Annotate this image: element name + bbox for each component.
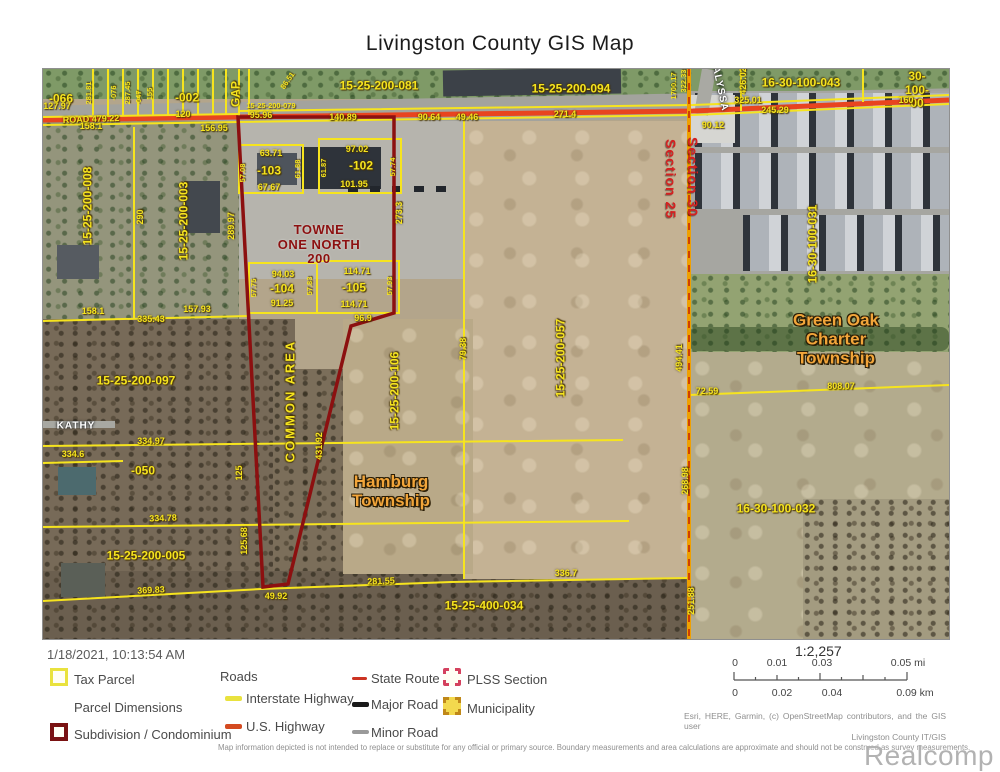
map-label: 15-25-200-094 xyxy=(532,82,611,95)
map-label: 156.95 xyxy=(200,123,228,133)
map-label: 57.93 xyxy=(386,277,394,296)
map-label: 322.33 xyxy=(680,70,688,93)
map-label: 268.98 xyxy=(680,467,690,495)
disclaimer: Map information depicted is not intended… xyxy=(218,743,970,752)
map-label: 90.64 xyxy=(418,112,441,122)
plss-section-icon xyxy=(443,668,461,686)
map-label: 49.46 xyxy=(456,112,479,122)
map-label: 57.08 xyxy=(239,164,247,183)
scale-km-3: 0.09 km xyxy=(896,687,933,699)
map-label: Section 25 xyxy=(662,139,678,219)
map-label: 16-30-100-031 xyxy=(806,205,819,284)
map-label: 114.71 xyxy=(340,299,367,309)
tax-parcel-icon xyxy=(50,668,68,686)
municipality-icon xyxy=(443,697,461,715)
legend-municipality: Municipality xyxy=(467,701,535,716)
map-label: 125 xyxy=(234,465,244,480)
map-label: 72.59 xyxy=(696,386,719,396)
map-label: 15-25-200-106 xyxy=(388,352,401,431)
map-label: 15-25-200-008 xyxy=(81,167,94,246)
map-label: 125.68 xyxy=(239,527,249,555)
legend-major-road: Major Road xyxy=(371,697,438,712)
map-label: 1700.17 xyxy=(670,72,678,99)
scale-km-1: 0.02 xyxy=(772,687,792,699)
map-label: 95.96 xyxy=(250,110,273,120)
map-label: 63.71 xyxy=(260,148,283,158)
gis-map-report: Livingston County GIS Map xyxy=(0,0,1000,772)
map-label: -105 xyxy=(342,281,366,294)
minor-road-icon xyxy=(352,730,369,734)
map-label: COMMON AREA xyxy=(284,340,299,463)
map-label: 61.88 xyxy=(294,160,302,179)
map-label: 273.3 xyxy=(394,202,404,225)
map-label: 140.89 xyxy=(329,112,357,122)
map-label: 426.02 xyxy=(738,68,748,95)
map-label: 114.71 xyxy=(343,266,370,276)
map-label: 57.83 xyxy=(306,277,314,296)
legend-minor-road: Minor Road xyxy=(371,725,438,740)
map-label: 334.97 xyxy=(137,436,165,446)
map-label: 91.25 xyxy=(271,298,294,308)
map-label: 155 xyxy=(146,88,154,101)
map-label: 49.92 xyxy=(265,591,288,601)
map-label: 271.4 xyxy=(554,109,577,119)
legend-subdivision: Subdivision / Condominium xyxy=(74,727,232,742)
map-label: 15-25-200-081 xyxy=(340,79,419,92)
map-label: 160 xyxy=(898,95,913,105)
map-label: -002 xyxy=(175,91,199,104)
attribution-sources: Esri, HERE, Garmin, (c) OpenStreetMap co… xyxy=(684,711,946,731)
map-label: 57.75 xyxy=(250,279,258,298)
map-label: 494.41 xyxy=(674,344,684,372)
scale-km-0: 0 xyxy=(732,687,738,699)
legend-state-route: State Route xyxy=(371,671,440,686)
map-label: 97.02 xyxy=(346,144,369,154)
map-label: 127.97 xyxy=(43,101,71,111)
map-label: KATHY xyxy=(57,420,96,431)
map-label: -076 xyxy=(110,85,118,100)
map-label: -102 xyxy=(349,159,373,172)
page-title: Livingston County GIS Map xyxy=(0,32,1000,56)
map-label: 336.7 xyxy=(555,568,578,578)
scale-mi-0: 0 xyxy=(732,657,738,669)
map-label: 287.45 xyxy=(124,82,132,105)
timestamp: 1/18/2021, 10:13:54 AM xyxy=(47,647,185,662)
map-label: 334.78 xyxy=(149,512,177,523)
scale-mi-1: 0.01 xyxy=(767,657,787,669)
map-label: 15-25-200-057 xyxy=(554,319,567,398)
scale-km-2: 0.04 xyxy=(822,687,842,699)
legend-parcel-dimensions: Parcel Dimensions xyxy=(74,700,182,715)
map-label: -104 xyxy=(270,282,294,295)
legend-roads-header: Roads xyxy=(220,669,258,684)
map-label: -047 xyxy=(135,90,143,105)
map-label: 15-25-200-005 xyxy=(107,549,186,562)
map-label: -103 xyxy=(257,164,281,177)
map-label: 15-25-200-003 xyxy=(177,182,190,261)
scale-mi-2: 0.03 xyxy=(812,657,832,669)
map-label: Green Oak Charter Township xyxy=(793,310,879,367)
map-label: 157.93 xyxy=(183,304,211,314)
map-label: 90.12 xyxy=(702,120,725,130)
map-label: 16-30-100-032 xyxy=(737,502,816,515)
scale-bar xyxy=(733,672,913,686)
map-label: 94.03 xyxy=(272,269,295,279)
map-label: 15-25-400-034 xyxy=(445,599,524,612)
legend-interstate: Interstate Highway xyxy=(246,691,354,706)
map-label: TOWNE ONE NORTH 200 xyxy=(278,223,361,267)
map-label: 15-25-200-097 xyxy=(97,374,176,387)
subdivision-icon xyxy=(50,723,68,741)
map-label: 101.95 xyxy=(340,179,368,189)
realcomp-watermark: Realcomp xyxy=(864,740,994,772)
map-label: 96.9 xyxy=(354,313,372,323)
map-label: 158.1 xyxy=(82,306,105,316)
map-label: 369.83 xyxy=(137,584,165,596)
map-label: 281.81 xyxy=(85,82,93,105)
state-route-icon xyxy=(352,677,367,680)
map-label: 16-30-100-043 xyxy=(762,76,841,89)
interstate-highway-icon xyxy=(225,696,242,701)
map-label: 325.01 xyxy=(734,95,762,105)
map-label: 245.29 xyxy=(761,105,789,115)
map-label: 15-25-200-079 xyxy=(246,102,295,110)
map-label: 281.55 xyxy=(367,575,395,586)
major-road-icon xyxy=(352,702,369,707)
map-label: 120 xyxy=(175,109,190,119)
map-label: -050 xyxy=(131,464,155,477)
legend-tax-parcel: Tax Parcel xyxy=(74,672,135,687)
map-viewport: -066-00215-25-200-08115-25-200-09416-30-… xyxy=(42,68,950,640)
map-label: 57.74 xyxy=(389,158,397,177)
legend-plss-section: PLSS Section xyxy=(467,672,547,687)
map-label: 251.88 xyxy=(686,587,696,615)
map-label: 290 xyxy=(135,209,145,224)
map-label: Hamburg Township xyxy=(352,472,430,510)
map-label: 67.67 xyxy=(258,182,281,192)
map-label: 334.6 xyxy=(62,449,85,459)
scale-mi-3: 0.05 mi xyxy=(891,657,925,669)
map-label: GAP xyxy=(229,81,242,107)
map-label: 431.92 xyxy=(314,432,324,460)
legend-us-highway: U.S. Highway xyxy=(246,719,325,734)
map-label: 289.97 xyxy=(226,212,236,240)
map-label: 808.07 xyxy=(827,381,855,391)
map-label: 79.38 xyxy=(458,338,468,361)
map-label: Section 30 xyxy=(684,137,700,217)
map-label: 335.43 xyxy=(137,314,165,324)
map-label: 61.87 xyxy=(320,159,328,178)
us-highway-icon xyxy=(225,724,242,729)
map-label: 158.1 xyxy=(80,121,103,131)
